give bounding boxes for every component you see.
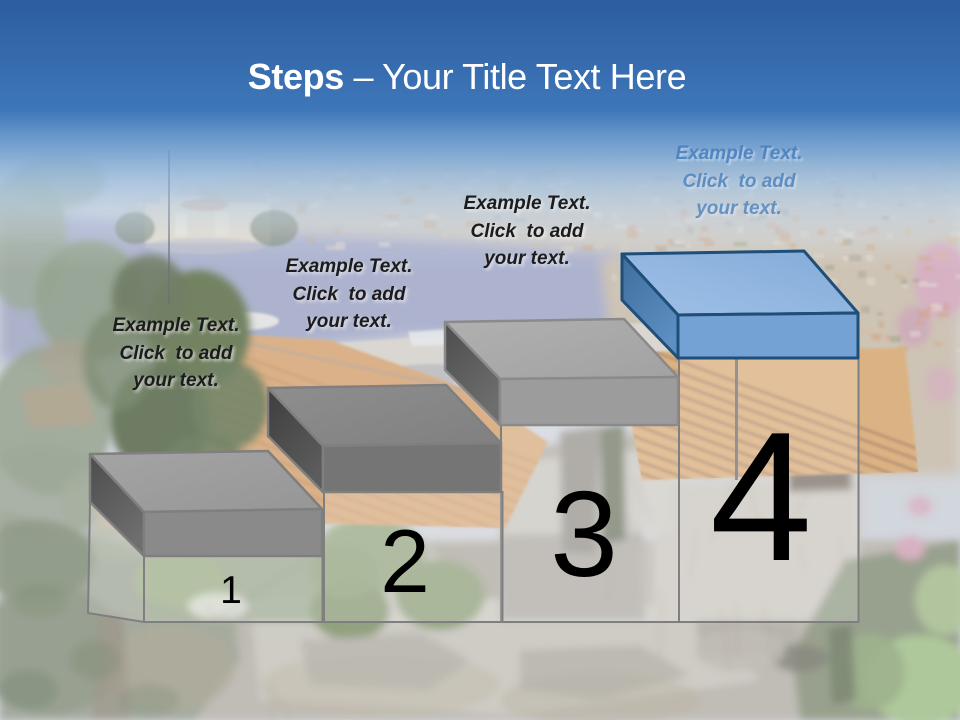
svg-text:1: 1	[220, 569, 242, 612]
svg-text:4: 4	[710, 393, 812, 599]
svg-text:2: 2	[380, 511, 430, 611]
svg-text:3: 3	[550, 466, 618, 602]
